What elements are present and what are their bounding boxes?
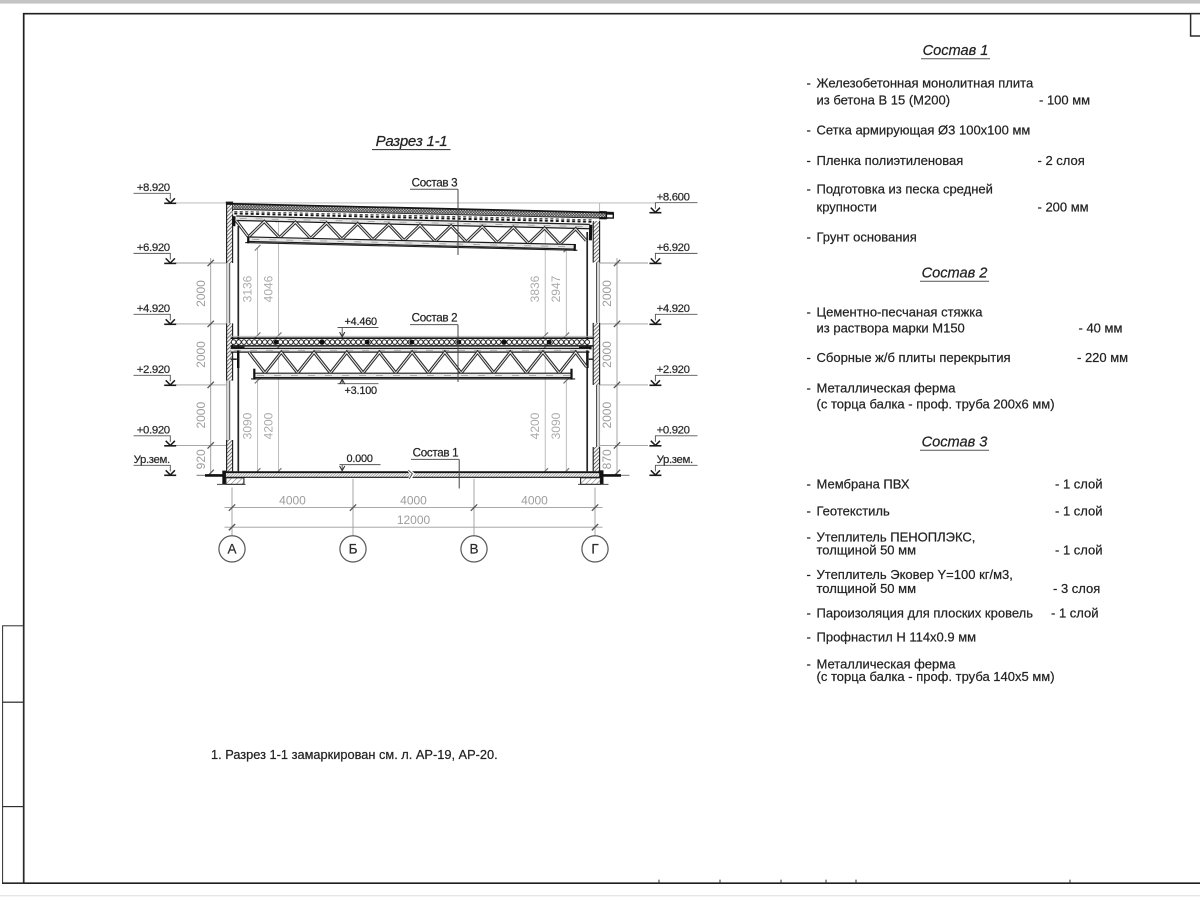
svg-text:+4.460: +4.460 [345,316,378,328]
svg-text:Пароизоляция для плоских крове: Пароизоляция для плоских кровель [817,606,1034,621]
svg-text:4000: 4000 [521,494,548,508]
svg-text:Грунт основания: Грунт основания [817,230,917,245]
svg-text:-: - [807,182,811,197]
svg-text:- 40 мм: - 40 мм [1079,321,1123,336]
svg-text:4000: 4000 [400,494,427,508]
svg-text:Цементно-песчаная стяжка: Цементно-песчаная стяжка [817,305,984,320]
svg-text:(с торца балка - проф. труба 1: (с торца балка - проф. труба 140х5 мм) [817,669,1055,684]
svg-text:- 1 слой: - 1 слой [1051,606,1099,621]
svg-text:4200: 4200 [528,412,542,439]
svg-text:+6.920: +6.920 [137,242,170,254]
svg-text:Состав 1: Состав 1 [923,43,989,59]
svg-text:Мембрана ПВХ: Мембрана ПВХ [817,477,910,492]
svg-text:- 220 мм: - 220 мм [1077,350,1128,365]
svg-text:из бетона В 15 (М200): из бетона В 15 (М200) [817,93,951,108]
svg-text:(с торца балка - проф. труба 2: (с торца балка - проф. труба 200х6 мм) [817,397,1055,412]
svg-text:-: - [807,530,811,545]
svg-text:+0.920: +0.920 [137,425,170,437]
svg-text:2000: 2000 [194,402,208,429]
svg-text:Состав 2: Состав 2 [922,266,988,282]
svg-text:4000: 4000 [279,494,306,508]
svg-text:+0.920: +0.920 [657,425,690,437]
svg-text:3090: 3090 [240,412,254,439]
svg-text:2000: 2000 [600,402,614,429]
svg-text:- 1 слой: - 1 слой [1055,477,1103,492]
svg-text:Сетка армирующая Ø3 100х100 мм: Сетка армирующая Ø3 100х100 мм [817,123,1031,138]
svg-text:толщиной 50 мм: толщиной 50 мм [817,581,917,596]
svg-text:Б: Б [349,542,358,557]
svg-text:Профнастил Н 114х0.9 мм: Профнастил Н 114х0.9 мм [817,630,977,645]
svg-text:-: - [807,477,811,492]
svg-text:- 3 слоя: - 3 слоя [1053,581,1100,596]
svg-text:-: - [807,504,811,519]
svg-text:+4.920: +4.920 [137,303,170,315]
svg-text:2000: 2000 [600,280,614,307]
svg-text:Утеплитель Эковер Y=100 кг/м3,: Утеплитель Эковер Y=100 кг/м3, [817,567,1013,582]
svg-text:Подготовка из песка средней: Подготовка из песка средней [817,182,993,197]
svg-text:А: А [227,542,236,557]
svg-text:Пленка полиэтиленовая: Пленка полиэтиленовая [817,153,964,168]
svg-text:+4.920: +4.920 [657,303,690,315]
svg-text:Разрез 1-1: Разрез 1-1 [376,133,448,150]
svg-text:-: - [807,153,811,168]
svg-text:В: В [469,542,478,557]
svg-text:920: 920 [194,449,208,469]
svg-text:Состав 1: Состав 1 [413,447,459,460]
svg-text:+2.920: +2.920 [137,364,170,376]
svg-text:-: - [807,123,811,138]
svg-text:- 200 мм: - 200 мм [1038,200,1089,215]
svg-text:Железобетонная монолитная пли: Железобетонная монолитная плита [817,76,1034,91]
svg-text:3836: 3836 [528,275,542,302]
svg-text:- 1 слой: - 1 слой [1055,504,1103,519]
svg-text:Ур.зем.: Ур.зем. [134,454,170,466]
svg-text:крупности: крупности [817,200,877,215]
svg-text:-: - [807,606,811,621]
svg-text:толщиной 50 мм: толщиной 50 мм [817,543,917,558]
svg-text:+2.920: +2.920 [657,364,690,376]
svg-text:2000: 2000 [600,341,614,368]
svg-text:3090: 3090 [549,412,563,439]
svg-text:2947: 2947 [549,275,563,302]
svg-text:2000: 2000 [194,341,208,368]
svg-text:+6.920: +6.920 [657,242,690,254]
svg-text:+8.920: +8.920 [137,182,170,194]
svg-text:-: - [807,381,811,396]
svg-text:- 1 слой: - 1 слой [1055,543,1103,558]
svg-text:Состав 3: Состав 3 [922,435,988,451]
svg-text:4200: 4200 [261,412,275,439]
svg-text:-: - [807,230,811,245]
svg-text:Ур.зем.: Ур.зем. [657,454,693,466]
svg-text:2000: 2000 [194,280,208,307]
svg-text:-: - [807,305,811,320]
svg-text:Г: Г [591,542,599,557]
svg-text:+3.100: +3.100 [345,385,378,397]
svg-text:- 100 мм: - 100 мм [1039,93,1090,108]
svg-text:3136: 3136 [240,275,254,302]
svg-text:12000: 12000 [397,513,431,527]
svg-text:-: - [807,350,811,365]
svg-text:Состав 3: Состав 3 [412,177,458,190]
svg-text:-: - [807,76,811,91]
svg-text:Металлическая ферма: Металлическая ферма [817,381,957,396]
svg-text:1. Разрез 1-1 замаркирован см.: 1. Разрез 1-1 замаркирован см. л. АР-19,… [211,747,498,762]
svg-text:0.000: 0.000 [347,453,373,465]
svg-text:- 2 слоя: - 2 слоя [1038,153,1085,168]
svg-text:Геотекстиль: Геотекстиль [817,504,891,519]
svg-text:-: - [807,657,811,672]
svg-text:+8.600: +8.600 [657,192,690,204]
svg-text:Состав 2: Состав 2 [412,312,458,325]
svg-text:870: 870 [600,449,614,469]
svg-text:4046: 4046 [261,275,275,302]
svg-text:из раствора марки М150: из раствора марки М150 [817,321,965,336]
svg-text:-: - [807,567,811,582]
svg-text:Сборные ж/б плиты перекрытия: Сборные ж/б плиты перекрытия [817,350,1011,365]
svg-text:-: - [807,630,811,645]
